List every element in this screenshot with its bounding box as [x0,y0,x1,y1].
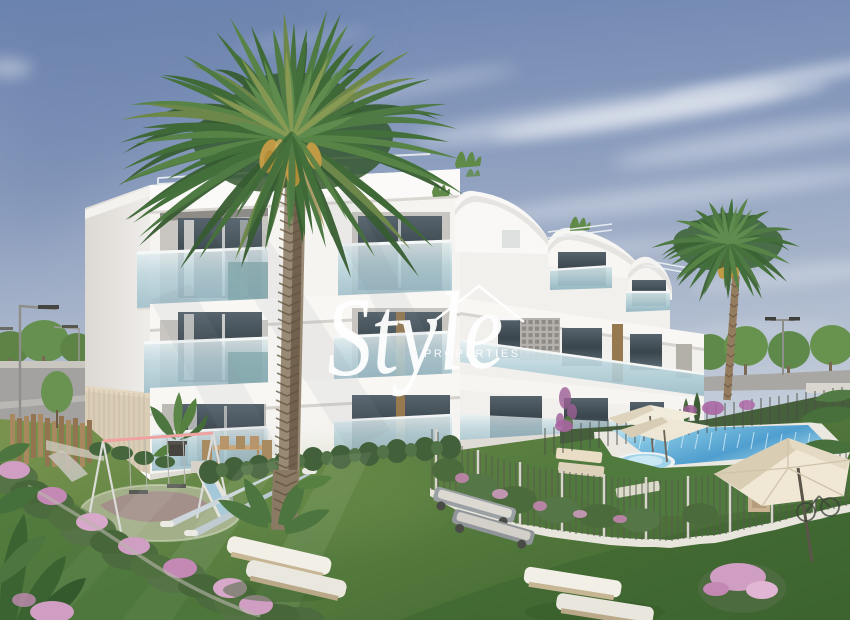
svg-text:Style: Style [323,268,507,401]
svg-text:PROPERTIES: PROPERTIES [424,348,521,360]
